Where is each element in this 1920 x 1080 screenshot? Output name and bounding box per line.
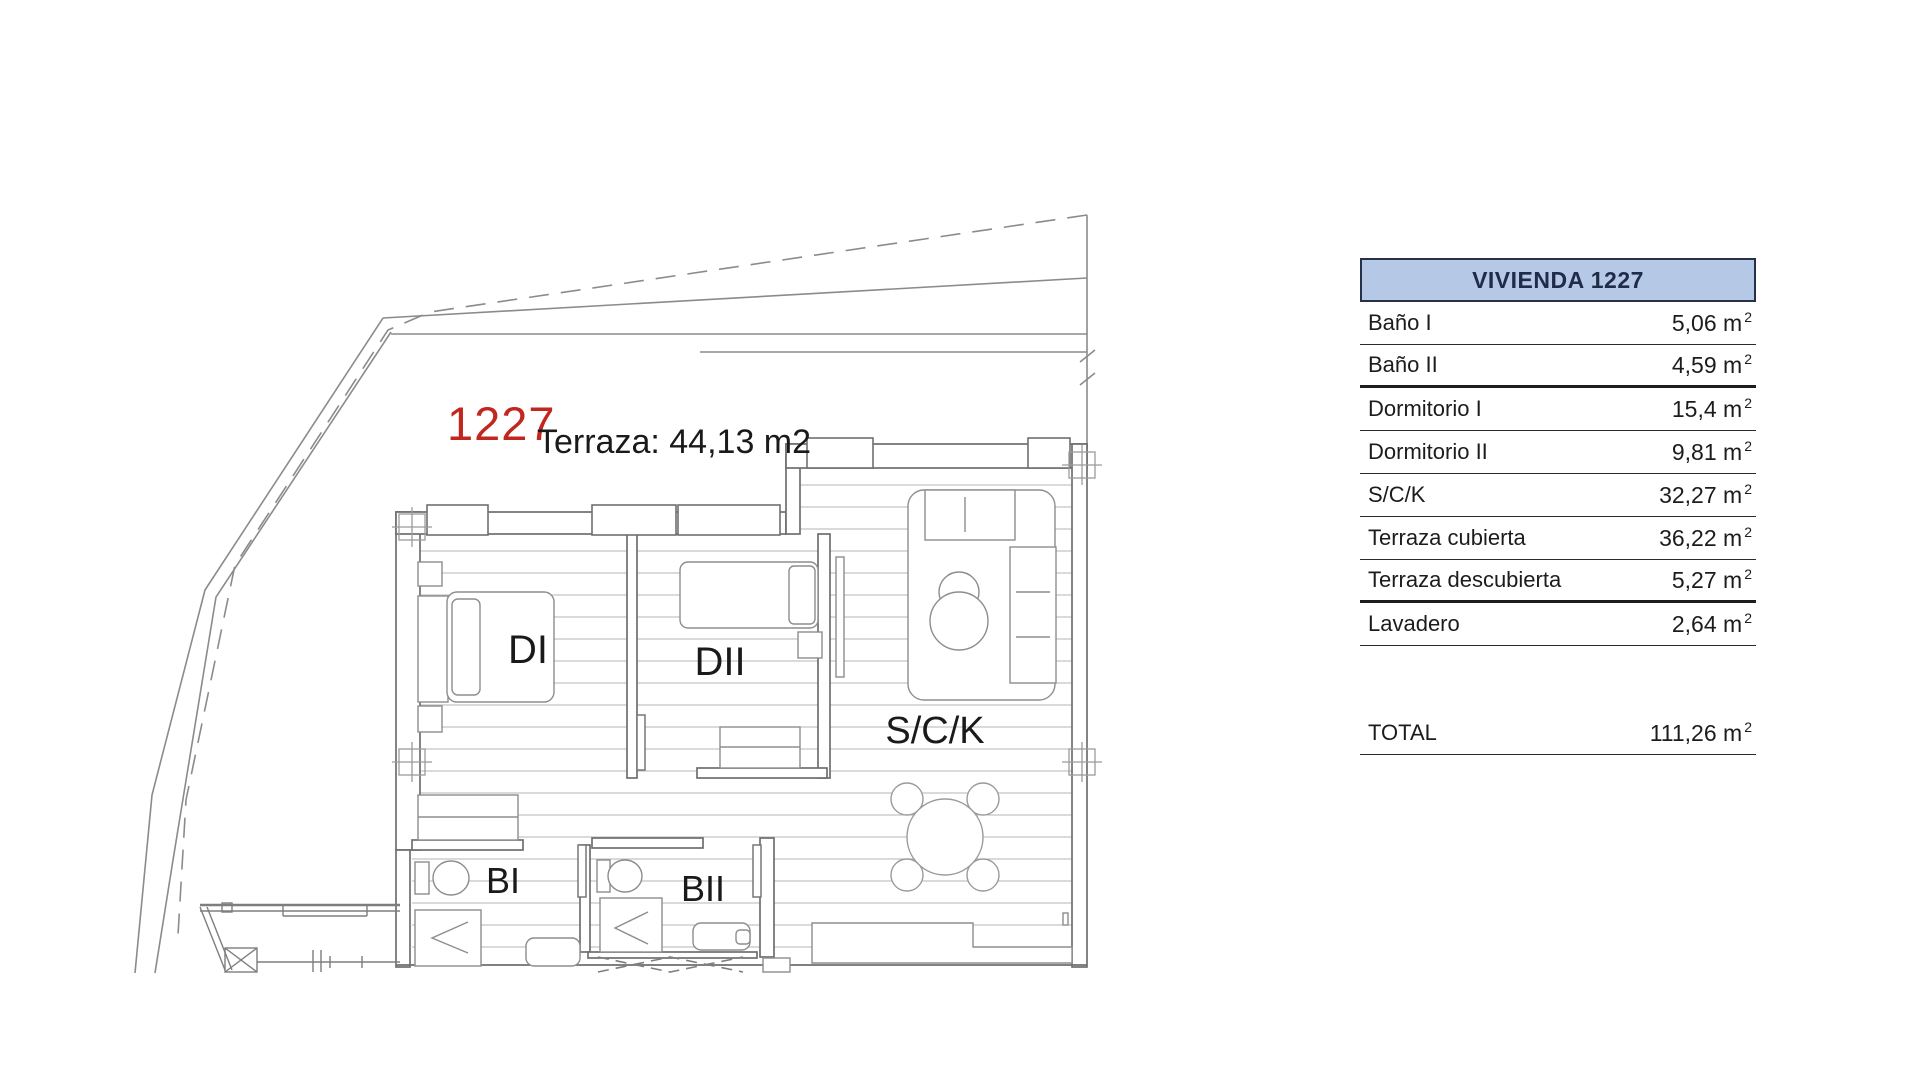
row-label: S/C/K: [1368, 482, 1425, 508]
terrace-area-label: Terraza: 44,13 m2: [537, 423, 811, 461]
room-label-dormitorio1: DI: [508, 628, 548, 672]
row-label: Dormitorio II: [1368, 439, 1488, 465]
row-label: Baño II: [1368, 352, 1438, 378]
row-value: 9,81 m2: [1672, 439, 1752, 466]
table-row: Terraza descubierta 5,27 m2: [1360, 560, 1756, 603]
row-value: 2,64 m2: [1672, 611, 1752, 638]
row-value: 15,4 m2: [1672, 396, 1752, 423]
table-row: Dormitorio I 15,4 m2: [1360, 388, 1756, 431]
room-label-dormitorio2: DII: [694, 640, 745, 684]
table-row: S/C/K 32,27 m2: [1360, 474, 1756, 517]
table-row: Baño I 5,06 m2: [1360, 302, 1756, 345]
area-table-title: VIVIENDA 1227: [1360, 258, 1756, 302]
row-label: Baño I: [1368, 310, 1432, 336]
row-value: 32,27 m2: [1659, 482, 1752, 509]
row-value: 36,22 m2: [1659, 525, 1752, 552]
row-label: Terraza cubierta: [1368, 525, 1526, 551]
total-value: 111,26 m2: [1650, 720, 1752, 747]
area-table: VIVIENDA 1227 Baño I 5,06 m2 Baño II 4,5…: [1360, 258, 1756, 755]
table-total-row: TOTAL 111,26 m2: [1360, 712, 1756, 755]
row-value: 5,27 m2: [1672, 567, 1752, 594]
row-label: Lavadero: [1368, 611, 1460, 637]
table-row: Baño II 4,59 m2: [1360, 345, 1756, 388]
room-label-bano2: BII: [681, 868, 725, 909]
row-label: Terraza descubierta: [1368, 567, 1561, 593]
total-label: TOTAL: [1368, 720, 1437, 746]
dining-table-group: [891, 783, 999, 891]
row-label: Dormitorio I: [1368, 396, 1482, 422]
porch-detail: [200, 903, 400, 972]
table-row: Lavadero 2,64 m2: [1360, 603, 1756, 646]
table-row: Terraza cubierta 36,22 m2: [1360, 517, 1756, 560]
room-label-salon-cocina: S/C/K: [885, 710, 984, 752]
floorplan-page: 1227 Terraza: 44,13 m2 DI DII S/C/K BI B…: [0, 0, 1920, 1080]
room-label-bano1: BI: [486, 860, 520, 901]
table-row: Dormitorio II 9,81 m2: [1360, 431, 1756, 474]
row-value: 5,06 m2: [1672, 310, 1752, 337]
row-value: 4,59 m2: [1672, 352, 1752, 379]
